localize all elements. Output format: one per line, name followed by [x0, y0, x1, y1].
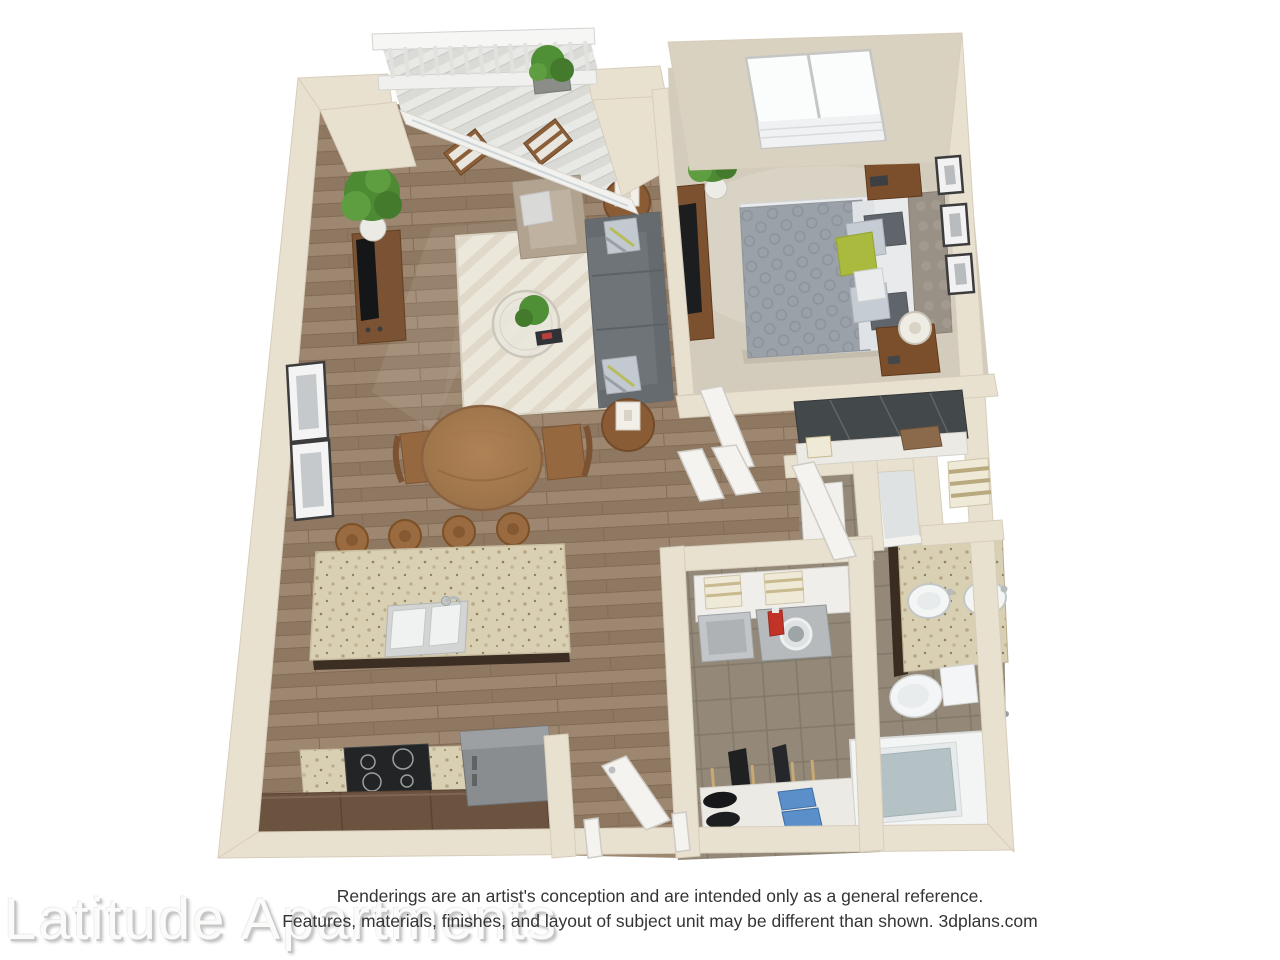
kitchen-sink — [385, 597, 468, 658]
disclaimer-line2: Features, materials, finishes, and layou… — [240, 909, 1080, 934]
disclaimer-line1: Renderings are an artist's conception an… — [240, 884, 1080, 909]
entry-door-knob — [609, 767, 616, 774]
tv-console — [352, 230, 406, 344]
side-table-bottom — [602, 399, 654, 451]
bedroom-closet — [794, 390, 968, 466]
cooktop — [344, 744, 432, 798]
shelf-towels-left — [704, 575, 742, 609]
floor-plan-rendering — [0, 0, 1280, 960]
sofa-pillow-top — [604, 218, 640, 254]
detergent-bottle — [768, 610, 784, 636]
floor-plan-stage: Latitude Apartments Renderings are an ar… — [0, 0, 1280, 960]
armchair-pillow — [520, 191, 553, 226]
closet-shelf-towels — [806, 436, 832, 458]
dining-table — [422, 406, 542, 510]
dryer — [756, 605, 832, 661]
niche-towels — [948, 458, 991, 508]
disclaimer: Renderings are an artist's conception an… — [240, 884, 1080, 934]
bed-pillow-white — [854, 268, 886, 302]
sofa-pillow-bottom — [602, 356, 641, 394]
sofa — [585, 212, 674, 408]
bedroom-window — [746, 50, 886, 148]
washer — [698, 612, 754, 662]
shelf-towels-right — [764, 571, 804, 605]
entry-jamb-left — [584, 818, 602, 858]
refrigerator — [460, 726, 556, 806]
kitchen-island — [310, 544, 570, 670]
entry-jamb-right — [672, 812, 690, 852]
closet-shelf-bag — [900, 426, 942, 450]
picture-frames-left-wall — [287, 362, 333, 520]
